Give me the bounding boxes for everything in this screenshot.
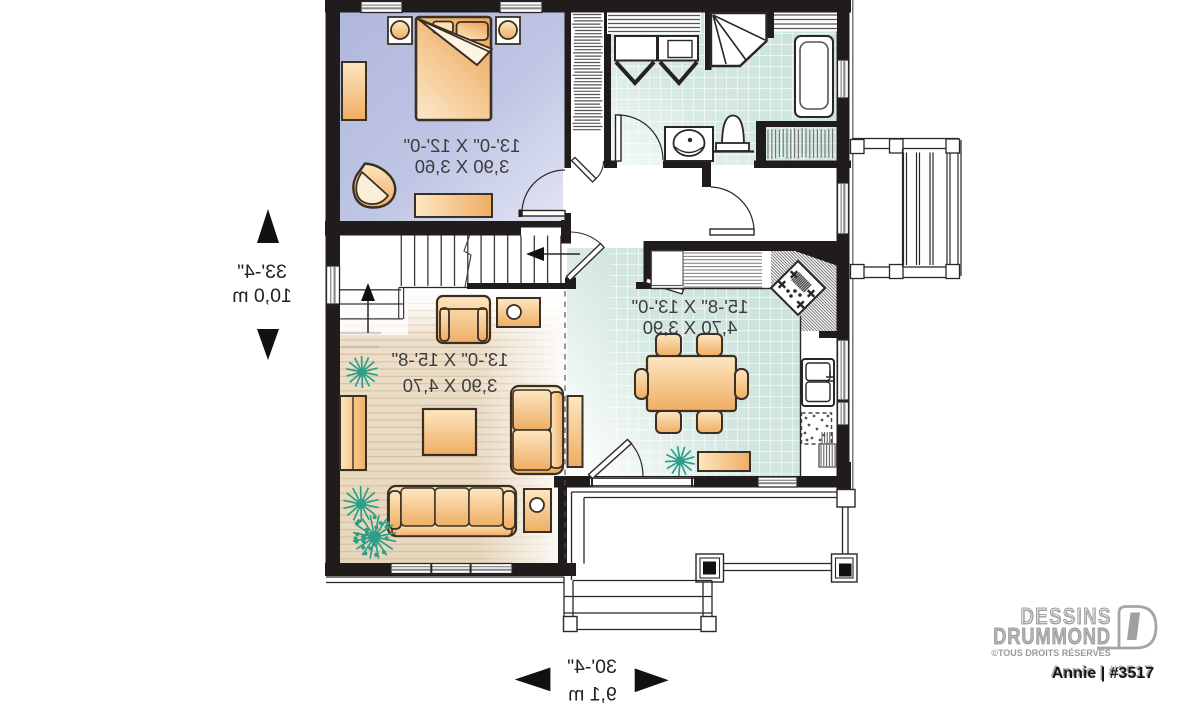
svg-text:3,90 X 3,60: 3,90 X 3,60 [415, 156, 510, 177]
svg-text:©TOUS DROITS RÉSERVÉS: ©TOUS DROITS RÉSERVÉS [991, 648, 1110, 658]
svg-text:DRUMMOND: DRUMMOND [993, 624, 1111, 649]
svg-text:13'-0" X 15'-8": 13'-0" X 15'-8" [392, 349, 509, 370]
svg-text:10,0 m: 10,0 m [232, 285, 292, 307]
svg-text:15'-8" X 13'-0": 15'-8" X 13'-0" [632, 296, 749, 317]
svg-text:4,70 X 3,90: 4,70 X 3,90 [643, 317, 738, 338]
svg-text:9,1 m: 9,1 m [568, 684, 617, 706]
svg-text:Annie | #3517: Annie | #3517 [1052, 665, 1154, 682]
svg-text:30'-4": 30'-4" [567, 656, 617, 678]
svg-text:13'-0" X 12'-0": 13'-0" X 12'-0" [404, 135, 521, 156]
svg-text:33'-4": 33'-4" [237, 261, 287, 283]
svg-text:3,90 X 4,70: 3,90 X 4,70 [403, 375, 498, 396]
